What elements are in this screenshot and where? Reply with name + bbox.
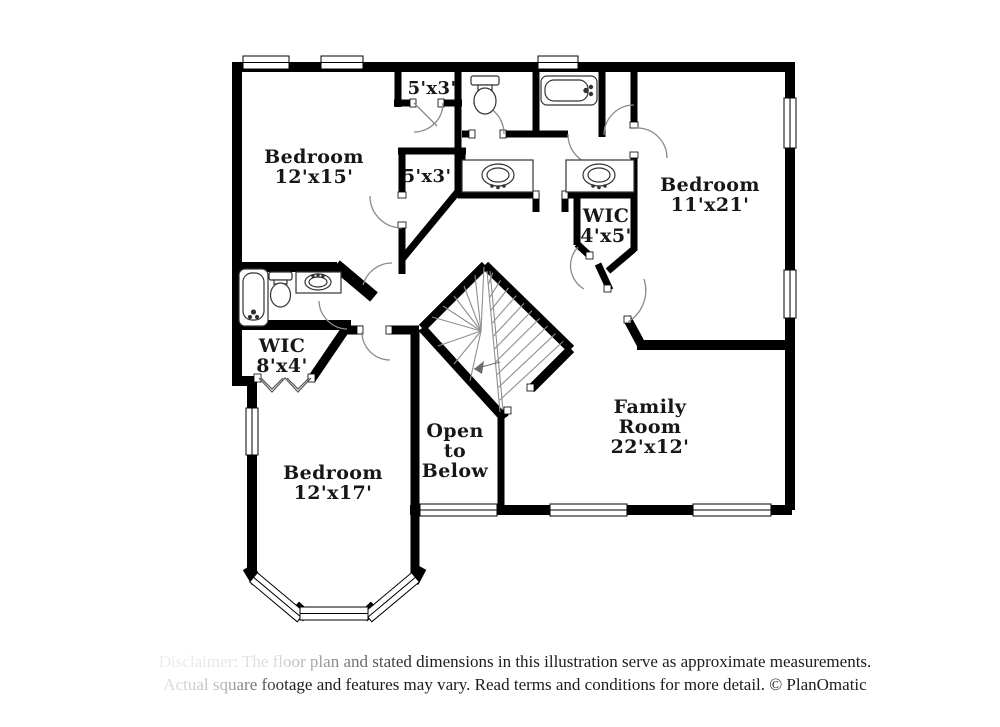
door-family-room [628, 279, 646, 322]
bay-window-left [250, 573, 305, 622]
staircase [432, 267, 563, 412]
disclaimer-line-2: Actual square footage and features may v… [163, 673, 866, 696]
window-top-1 [243, 56, 289, 69]
room-dims: 8'x4' [256, 356, 307, 376]
room-name: WIC [580, 206, 631, 226]
room-dims: 12'x17' [283, 483, 383, 503]
label-wic-right: WIC 4'x5' [580, 206, 631, 246]
door-bedroom-right [637, 128, 667, 158]
room-dims: 5'x3' [408, 79, 457, 99]
disclaimer-line-1: Disclaimer: The floor plan and stated di… [159, 650, 872, 673]
label-bedroom-top-left: Bedroom 12'x15' [264, 147, 364, 187]
room-name: Family [611, 397, 690, 417]
label-line: Below [422, 461, 488, 481]
toilet-icon [471, 76, 499, 114]
room-dims: 22'x12' [611, 437, 690, 457]
door-bedroom-top-left [370, 196, 402, 228]
room-dims: 4'x5' [580, 226, 631, 246]
door-bedroom-bottom [362, 332, 390, 360]
door-bath-nook [604, 105, 634, 135]
window-right-2 [784, 270, 796, 318]
label-open-to-below: Open to Below [422, 421, 488, 481]
label-bedroom-bottom: Bedroom 12'x17' [283, 463, 383, 503]
window-left-1 [246, 408, 258, 455]
room-name: Bedroom [264, 147, 364, 167]
window-bottom-2 [550, 504, 627, 516]
label-closet-top: 5'x3' [408, 79, 457, 99]
bathtub-icon-small [239, 269, 268, 326]
room-name: WIC [256, 336, 307, 356]
bay-window-bottom [300, 607, 368, 620]
window-top-2 [321, 56, 363, 69]
floor-plan-drawing [0, 0, 1000, 727]
floor-plan-page: Bedroom 12'x15' 5'x3' 5'x3' WIC 4'x5' Be… [0, 0, 1000, 727]
room-name: Room [611, 417, 690, 437]
window-bottom-1 [420, 504, 497, 516]
room-name: Bedroom [283, 463, 383, 483]
window-right-1 [784, 98, 796, 148]
sink-icon-left [462, 160, 533, 192]
bifold-door-icon [259, 378, 311, 392]
room-dims: 11'x21' [660, 195, 760, 215]
window-top-3 [538, 56, 578, 69]
room-dims: 5'x3' [403, 167, 452, 187]
room-dims: 12'x15' [264, 167, 364, 187]
toilet-icon-small [269, 272, 292, 307]
label-line: to [422, 441, 488, 461]
room-name: Bedroom [660, 175, 760, 195]
label-line: Open [422, 421, 488, 441]
label-family-room: Family Room 22'x12' [611, 397, 690, 457]
sink-icon-right [566, 160, 634, 192]
label-closet-mid: 5'x3' [403, 167, 452, 187]
door-hall-small [363, 263, 392, 285]
bathtub-icon [541, 76, 597, 105]
label-wic-left: WIC 8'x4' [256, 336, 307, 376]
label-bedroom-right: Bedroom 11'x21' [660, 175, 760, 215]
sink-icon-small [296, 272, 341, 293]
bay-window-right [364, 573, 419, 622]
window-bottom-3 [693, 504, 771, 516]
